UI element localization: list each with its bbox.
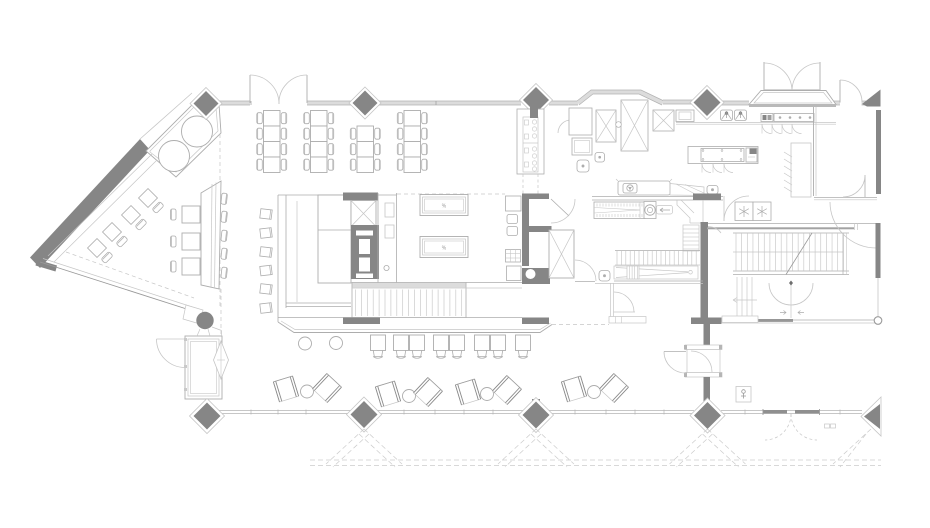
svg-text:%: % bbox=[442, 246, 447, 252]
svg-text:%: % bbox=[442, 204, 447, 210]
